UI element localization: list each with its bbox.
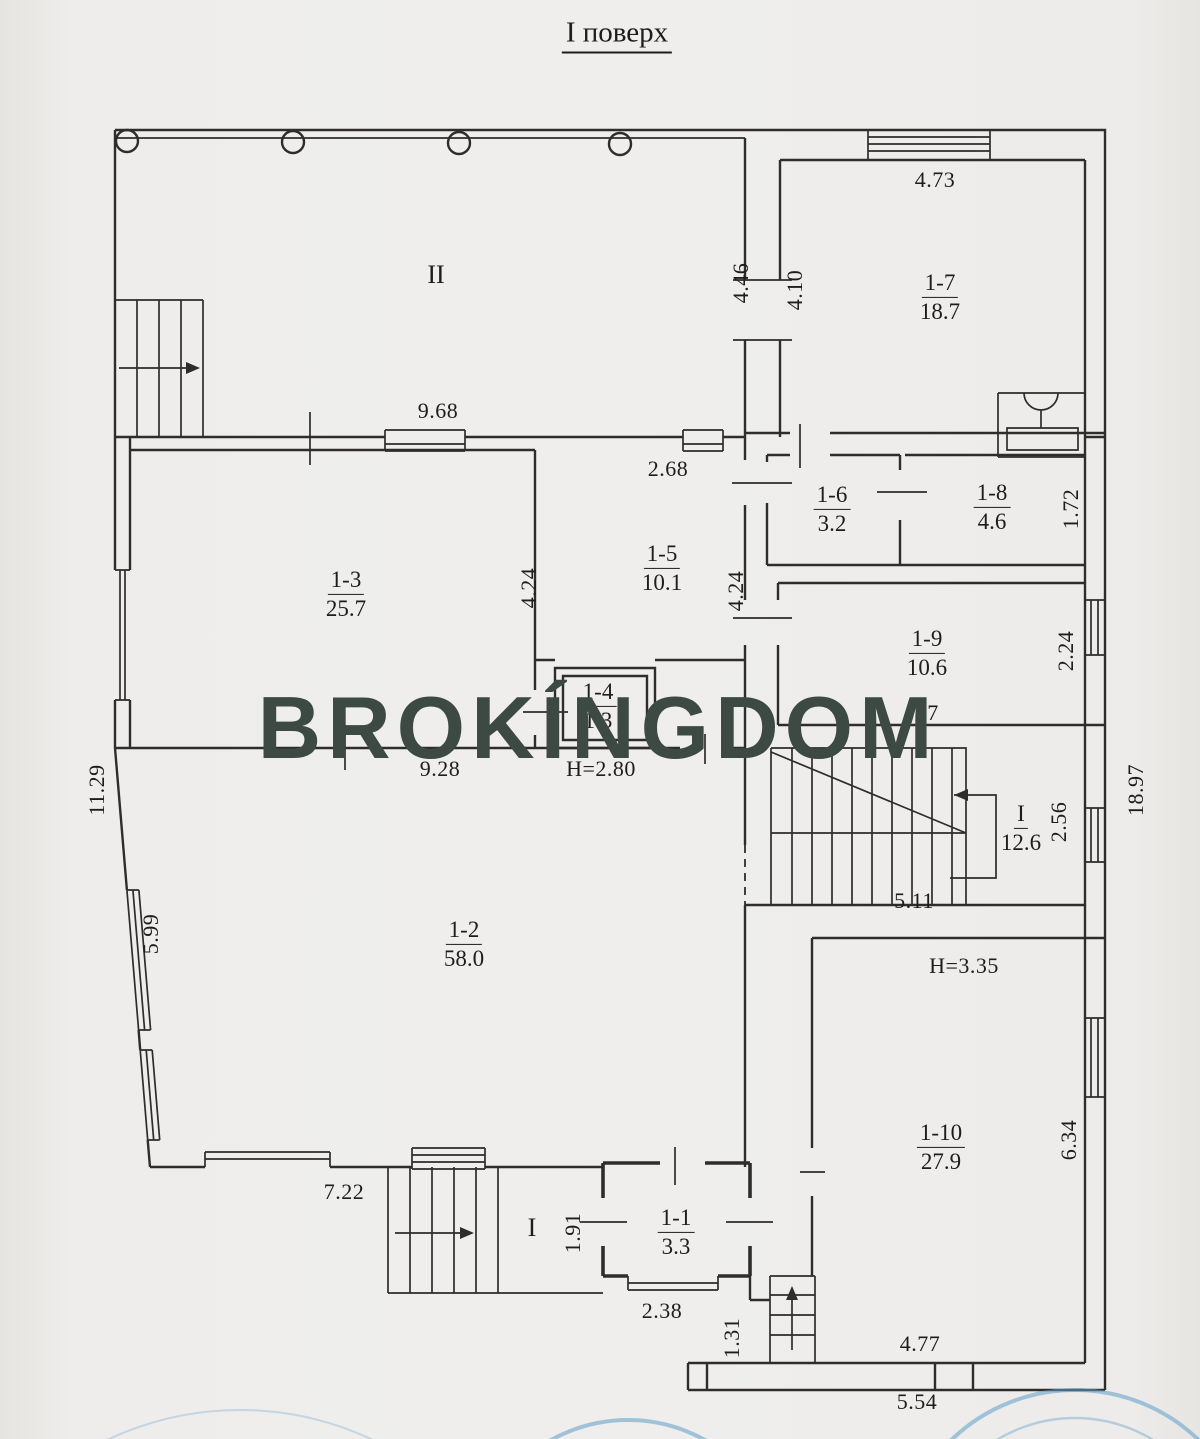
dim-4-77: 4.77 — [900, 1331, 941, 1357]
room-label-1-1: 1-13.3 — [658, 1204, 695, 1260]
dim-7-22: 7.22 — [324, 1179, 365, 1205]
dim-4-24-a: 4.24 — [516, 568, 542, 609]
dim-11-29: 11.29 — [84, 764, 110, 815]
dim-5-99: 5.99 — [138, 914, 164, 955]
brokingdom-watermark: BROKÍNGDOM — [258, 684, 939, 772]
dim-9-68: 9.68 — [418, 398, 459, 424]
round-stamp-marks — [0, 1390, 1200, 1439]
room-label-1-9: 1-910.6 — [907, 625, 947, 681]
room-label-1-5: 1-510.1 — [642, 540, 682, 596]
dim-2-24: 2.24 — [1053, 631, 1079, 672]
dim-1-72: 1.72 — [1058, 489, 1084, 530]
dim-6-34: 6.34 — [1056, 1120, 1082, 1161]
terrace-stairs — [115, 300, 203, 437]
dim-5-11: 5.11 — [894, 888, 934, 914]
porch-label: I — [528, 1213, 537, 1243]
room-label-1-3: 1-325.7 — [326, 566, 366, 622]
scanned-floor-plan-page: І поверх — [0, 0, 1200, 1439]
dim-2-38: 2.38 — [642, 1298, 683, 1324]
dim-4-73: 4.73 — [915, 167, 956, 193]
room-label-1-10: 1-1027.9 — [917, 1119, 965, 1175]
dim-1-91: 1.91 — [560, 1213, 586, 1254]
terrace-columns — [116, 130, 631, 155]
dim-18-97: 18.97 — [1123, 764, 1149, 816]
room-label-stair-hall: I12.6 — [1001, 800, 1041, 856]
height-note-annex: H=3.35 — [929, 953, 999, 979]
dim-4-46: 4.46 — [728, 263, 754, 304]
room-label-1-6: 1-63.2 — [814, 481, 851, 537]
room-label-1-2: 1-258.0 — [444, 916, 484, 972]
dim-2-68: 2.68 — [648, 456, 689, 482]
dim-4-10: 4.10 — [782, 270, 808, 311]
sink-fixture — [998, 393, 1085, 457]
room-label-1-8: 1-84.6 — [974, 479, 1011, 535]
dim-4-24-b: 4.24 — [723, 571, 749, 612]
terrace-label: II — [427, 260, 444, 290]
dim-5-54: 5.54 — [897, 1389, 938, 1415]
dim-1-31: 1.31 — [719, 1318, 745, 1359]
room-label-1-7: 1-718.7 — [920, 269, 960, 325]
dim-2-56: 2.56 — [1046, 802, 1072, 843]
back-steps — [770, 1276, 815, 1363]
page-title: І поверх — [562, 17, 672, 50]
